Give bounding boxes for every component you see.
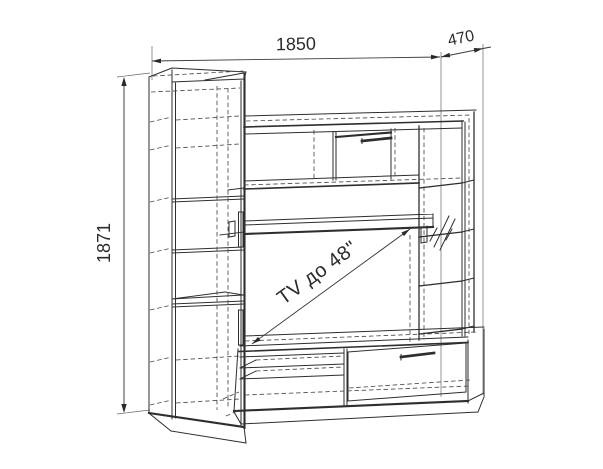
right-unit-frame	[462, 122, 474, 336]
arrow-left-icon	[441, 53, 450, 58]
dimension-width: 1850	[152, 34, 440, 80]
arrow-up-icon	[121, 77, 126, 86]
stand-top-front-edge	[239, 343, 468, 352]
arrow-right-icon	[474, 48, 483, 53]
tv-shelf	[220, 188, 433, 243]
cabinet-doors-and-niche	[172, 196, 244, 307]
cabinet-outline	[149, 68, 246, 443]
tv-size-label: TV до 48"	[273, 237, 361, 310]
drawer-handle	[401, 353, 434, 360]
tv-stand	[223, 235, 484, 424]
tv-diagonal-arrow-line	[252, 229, 410, 344]
height-extension-lines	[117, 73, 150, 414]
dimension-height: 1871	[94, 73, 150, 414]
stand-open-shelves	[240, 353, 344, 379]
width-dimension-line	[152, 57, 440, 61]
arrow-right-icon	[431, 55, 440, 60]
arrow-left-icon	[152, 59, 161, 64]
width-dimension-label: 1850	[276, 34, 316, 55]
bridge-door-top-edge	[336, 133, 391, 138]
right-unit-shelves	[419, 183, 462, 334]
drawing-canvas: 1871 1850 470	[0, 0, 603, 469]
arrow-down-icon	[121, 404, 126, 413]
height-dimension-label: 1871	[94, 223, 114, 263]
bridge-door-handle	[362, 138, 391, 144]
bridge-door	[336, 133, 391, 144]
tv-size-annotation: TV до 48"	[252, 229, 410, 344]
depth-dimension-label: 470	[446, 27, 476, 49]
arrow-up-right-icon	[401, 229, 410, 236]
stand-bottom-edge	[234, 401, 468, 411]
furniture-technical-drawing: 1871 1850 470	[0, 0, 603, 469]
cabinet-hidden-lines	[150, 71, 243, 410]
stand-drawer	[348, 343, 466, 401]
left-cabinet	[149, 68, 246, 443]
